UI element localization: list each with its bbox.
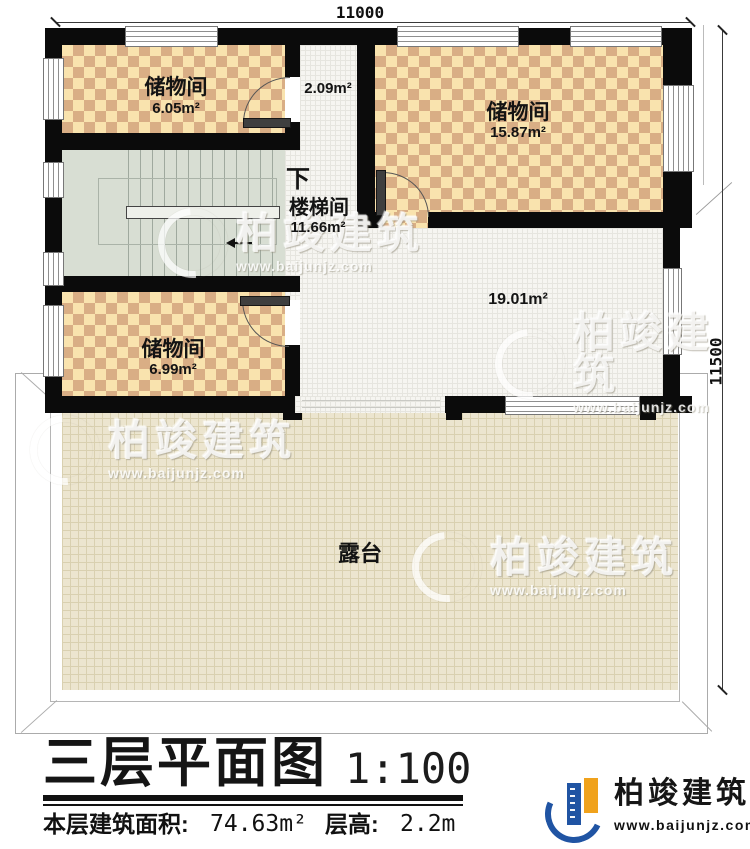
eave-edge-line bbox=[703, 25, 704, 185]
window-bottom-1 bbox=[505, 396, 640, 415]
door-leaf-storage-top-right bbox=[376, 170, 386, 216]
logo-building-blue bbox=[567, 783, 581, 825]
company-logo bbox=[545, 773, 611, 837]
wall-hall-left-a bbox=[285, 28, 300, 77]
storage-top-left-area: 6.05m² bbox=[116, 100, 236, 117]
storage-top-right-area: 15.87m² bbox=[458, 124, 578, 141]
storage-mid-left-area: 6.99m² bbox=[113, 361, 233, 378]
window-left-3 bbox=[43, 252, 64, 286]
open-area-area: 19.01m² bbox=[484, 291, 552, 309]
wall-hall-left-c bbox=[285, 345, 300, 396]
window-top-2 bbox=[397, 26, 519, 47]
stair-direction-label: 下 bbox=[283, 166, 313, 194]
title-underline-thick bbox=[43, 795, 463, 801]
wall-hallway-right bbox=[357, 28, 375, 228]
window-left-2 bbox=[43, 162, 64, 198]
open-area-floor bbox=[292, 228, 663, 396]
stair-handrail bbox=[126, 206, 280, 219]
wall-stair-storage-divider bbox=[45, 276, 300, 292]
window-right-1 bbox=[663, 85, 694, 172]
floor-area-label: 本层建筑面积: bbox=[43, 813, 189, 836]
eave-diagonal bbox=[696, 182, 732, 215]
window-top-3 bbox=[570, 26, 662, 47]
company-name: 柏竣建筑 bbox=[614, 779, 750, 809]
hallway-area: 2.09m² bbox=[296, 80, 360, 97]
stairwell-name: 楼梯间 bbox=[286, 197, 352, 220]
storage-top-right-name: 储物间 bbox=[458, 101, 578, 125]
window-left-1 bbox=[43, 58, 64, 120]
wall-storage-stair-divider bbox=[45, 133, 300, 150]
wall-notch-b bbox=[446, 413, 462, 420]
stair-direction-arrow bbox=[226, 238, 254, 248]
title-underline-thin bbox=[43, 804, 463, 806]
terrace-name: 露台 bbox=[330, 541, 390, 566]
window-left-4 bbox=[43, 305, 64, 377]
dimension-line-top bbox=[55, 22, 690, 23]
sheet-scale: 1:100 bbox=[345, 748, 471, 790]
sheet-title: 三层平面图 bbox=[43, 736, 328, 790]
wall-notch-c bbox=[640, 413, 656, 420]
door-leaf-storage-top-left bbox=[243, 118, 291, 128]
stairwell-area: 11.66m² bbox=[288, 219, 348, 236]
floor-plan-sheet: 柏竣建筑 www.baijunjz.com 柏竣建筑 www.baijunjz.… bbox=[0, 0, 750, 849]
company-url: www.baijunjz.com bbox=[614, 818, 750, 832]
logo-building-orange bbox=[584, 778, 598, 813]
storage-mid-left-name: 储物间 bbox=[113, 338, 233, 362]
terrace-opening-threshold bbox=[302, 400, 440, 408]
window-right-2 bbox=[663, 268, 682, 355]
dimension-right-label: 11500 bbox=[707, 332, 726, 392]
wall-notch-a bbox=[283, 413, 302, 420]
dimension-top-label: 11000 bbox=[320, 3, 400, 22]
storage-top-left-name: 储物间 bbox=[116, 76, 236, 100]
floor-height-label: 层高: bbox=[325, 813, 379, 836]
floor-area-value: 74.63m² bbox=[210, 813, 307, 836]
window-top-1 bbox=[125, 26, 218, 47]
floor-height-value: 2.2m bbox=[400, 813, 455, 836]
door-leaf-storage-mid-left bbox=[240, 296, 290, 306]
